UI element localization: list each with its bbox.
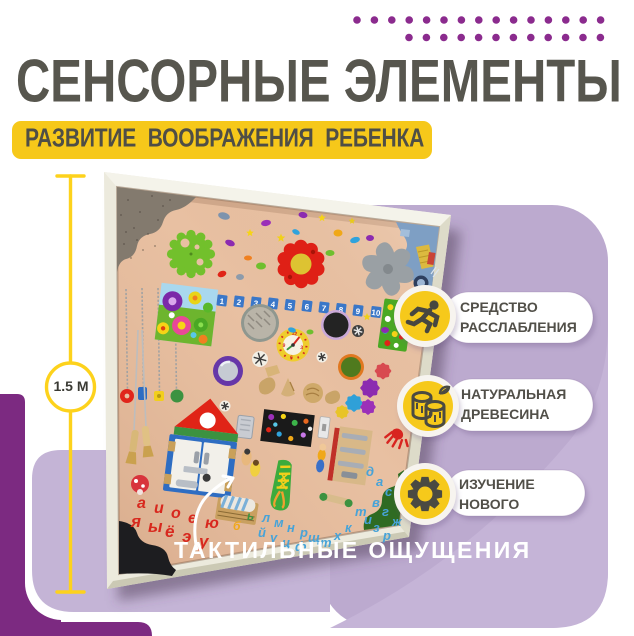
svg-text:и: и <box>154 500 164 517</box>
svg-text:м: м <box>274 515 284 530</box>
svg-text:10: 10 <box>371 308 381 318</box>
svg-text:я: я <box>130 512 141 531</box>
svg-text:ю: ю <box>205 515 219 532</box>
svg-text:н: н <box>287 520 295 535</box>
svg-text:с: с <box>385 484 393 499</box>
svg-text:з: з <box>373 520 380 535</box>
svg-text:б: б <box>233 519 241 533</box>
svg-text:о: о <box>171 505 181 522</box>
svg-text:ь: ь <box>247 509 254 523</box>
svg-text:а: а <box>376 474 383 489</box>
svg-text:ы: ы <box>148 517 163 536</box>
svg-text:ж: ж <box>391 514 403 529</box>
svg-text:в: в <box>372 495 380 510</box>
svg-text:и: и <box>364 512 372 527</box>
svg-text:г: г <box>382 504 389 519</box>
svg-text:д: д <box>366 464 374 479</box>
svg-text:а: а <box>137 495 146 512</box>
svg-text:л: л <box>261 510 270 525</box>
